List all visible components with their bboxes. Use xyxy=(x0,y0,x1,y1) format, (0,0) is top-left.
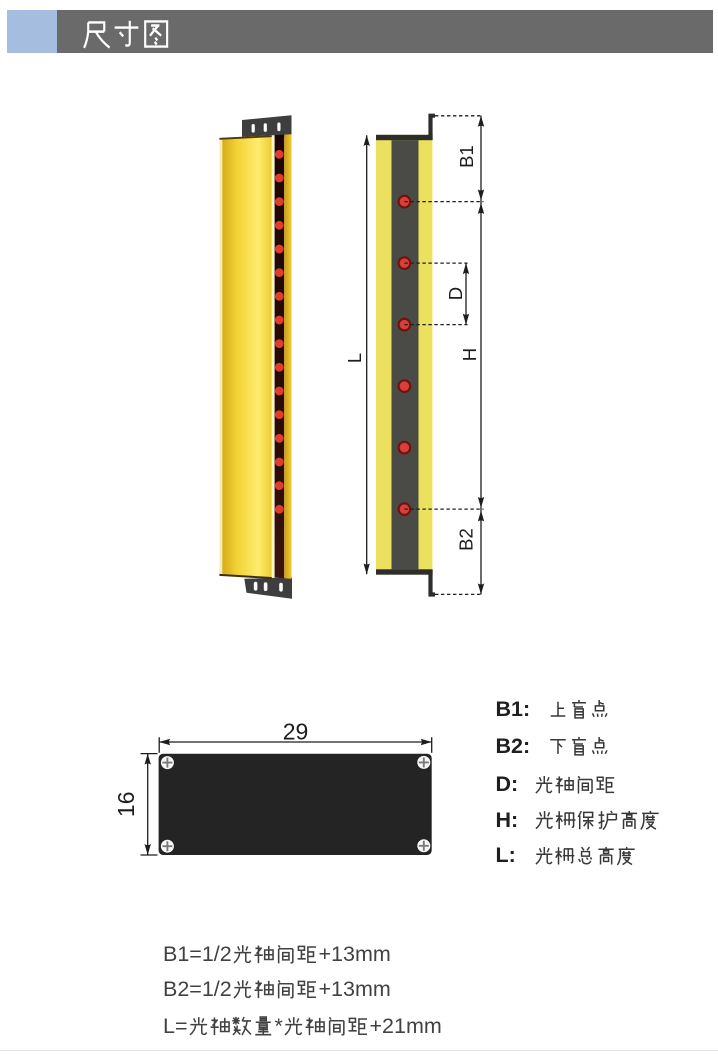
svg-text:D: D xyxy=(445,287,466,300)
svg-text:B2: B2 xyxy=(456,528,477,551)
svg-text:L: L xyxy=(344,353,365,363)
svg-text:29: 29 xyxy=(283,718,309,744)
svg-text:B1: B1 xyxy=(456,145,477,168)
svg-text:16: 16 xyxy=(113,792,139,818)
svg-text:H: H xyxy=(459,348,480,361)
